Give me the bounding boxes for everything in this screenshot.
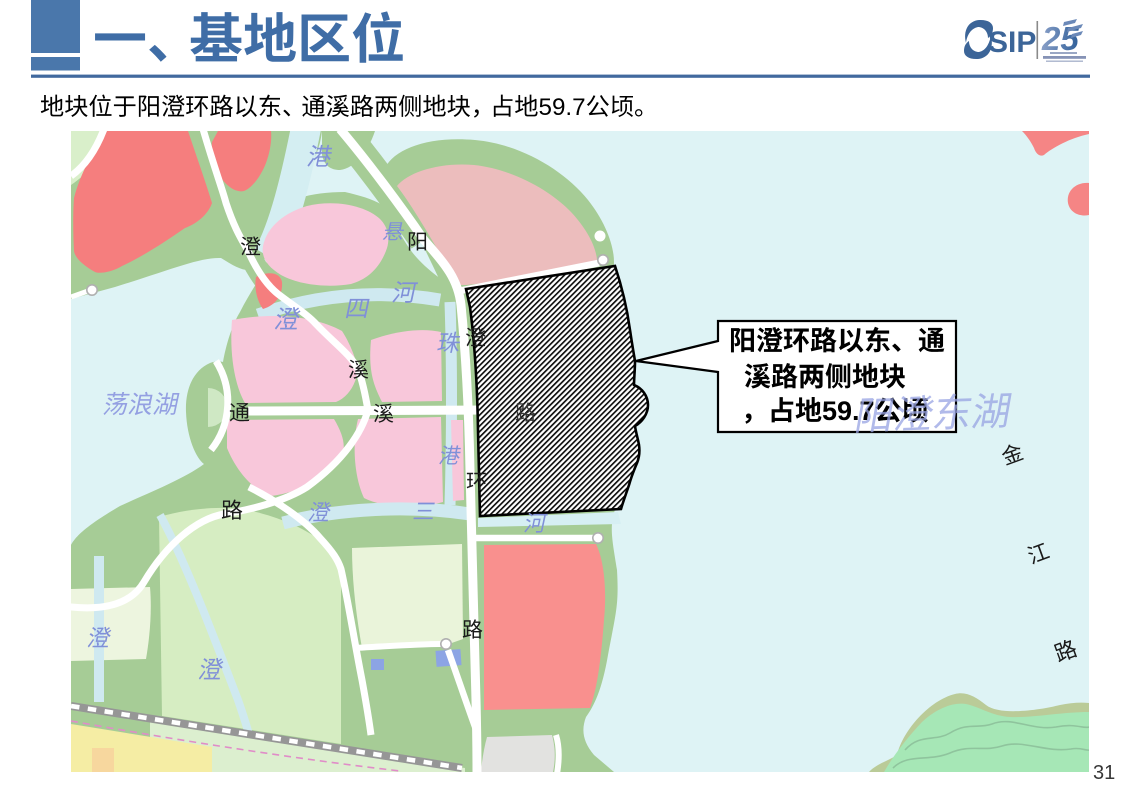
svg-text:SIP: SIP	[988, 26, 1036, 59]
svg-text:31: 31	[1093, 762, 1115, 784]
svg-text:25: 25	[1041, 20, 1079, 57]
svg-text:59.7: 59.7	[539, 94, 586, 121]
